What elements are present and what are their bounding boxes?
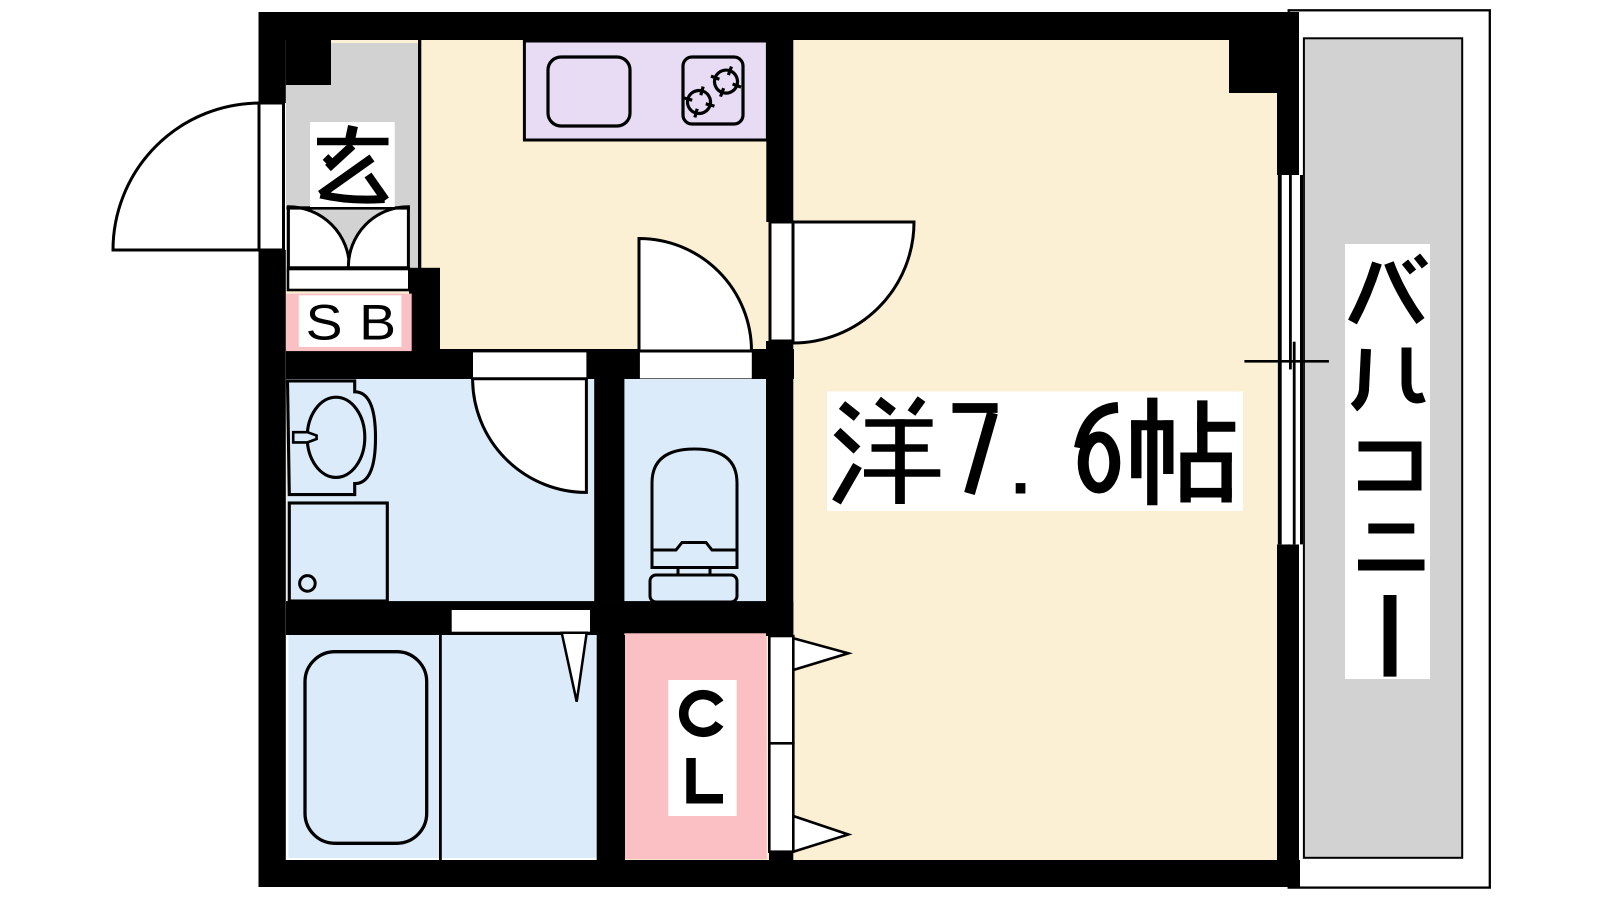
- svg-text:S B: S B: [306, 295, 397, 351]
